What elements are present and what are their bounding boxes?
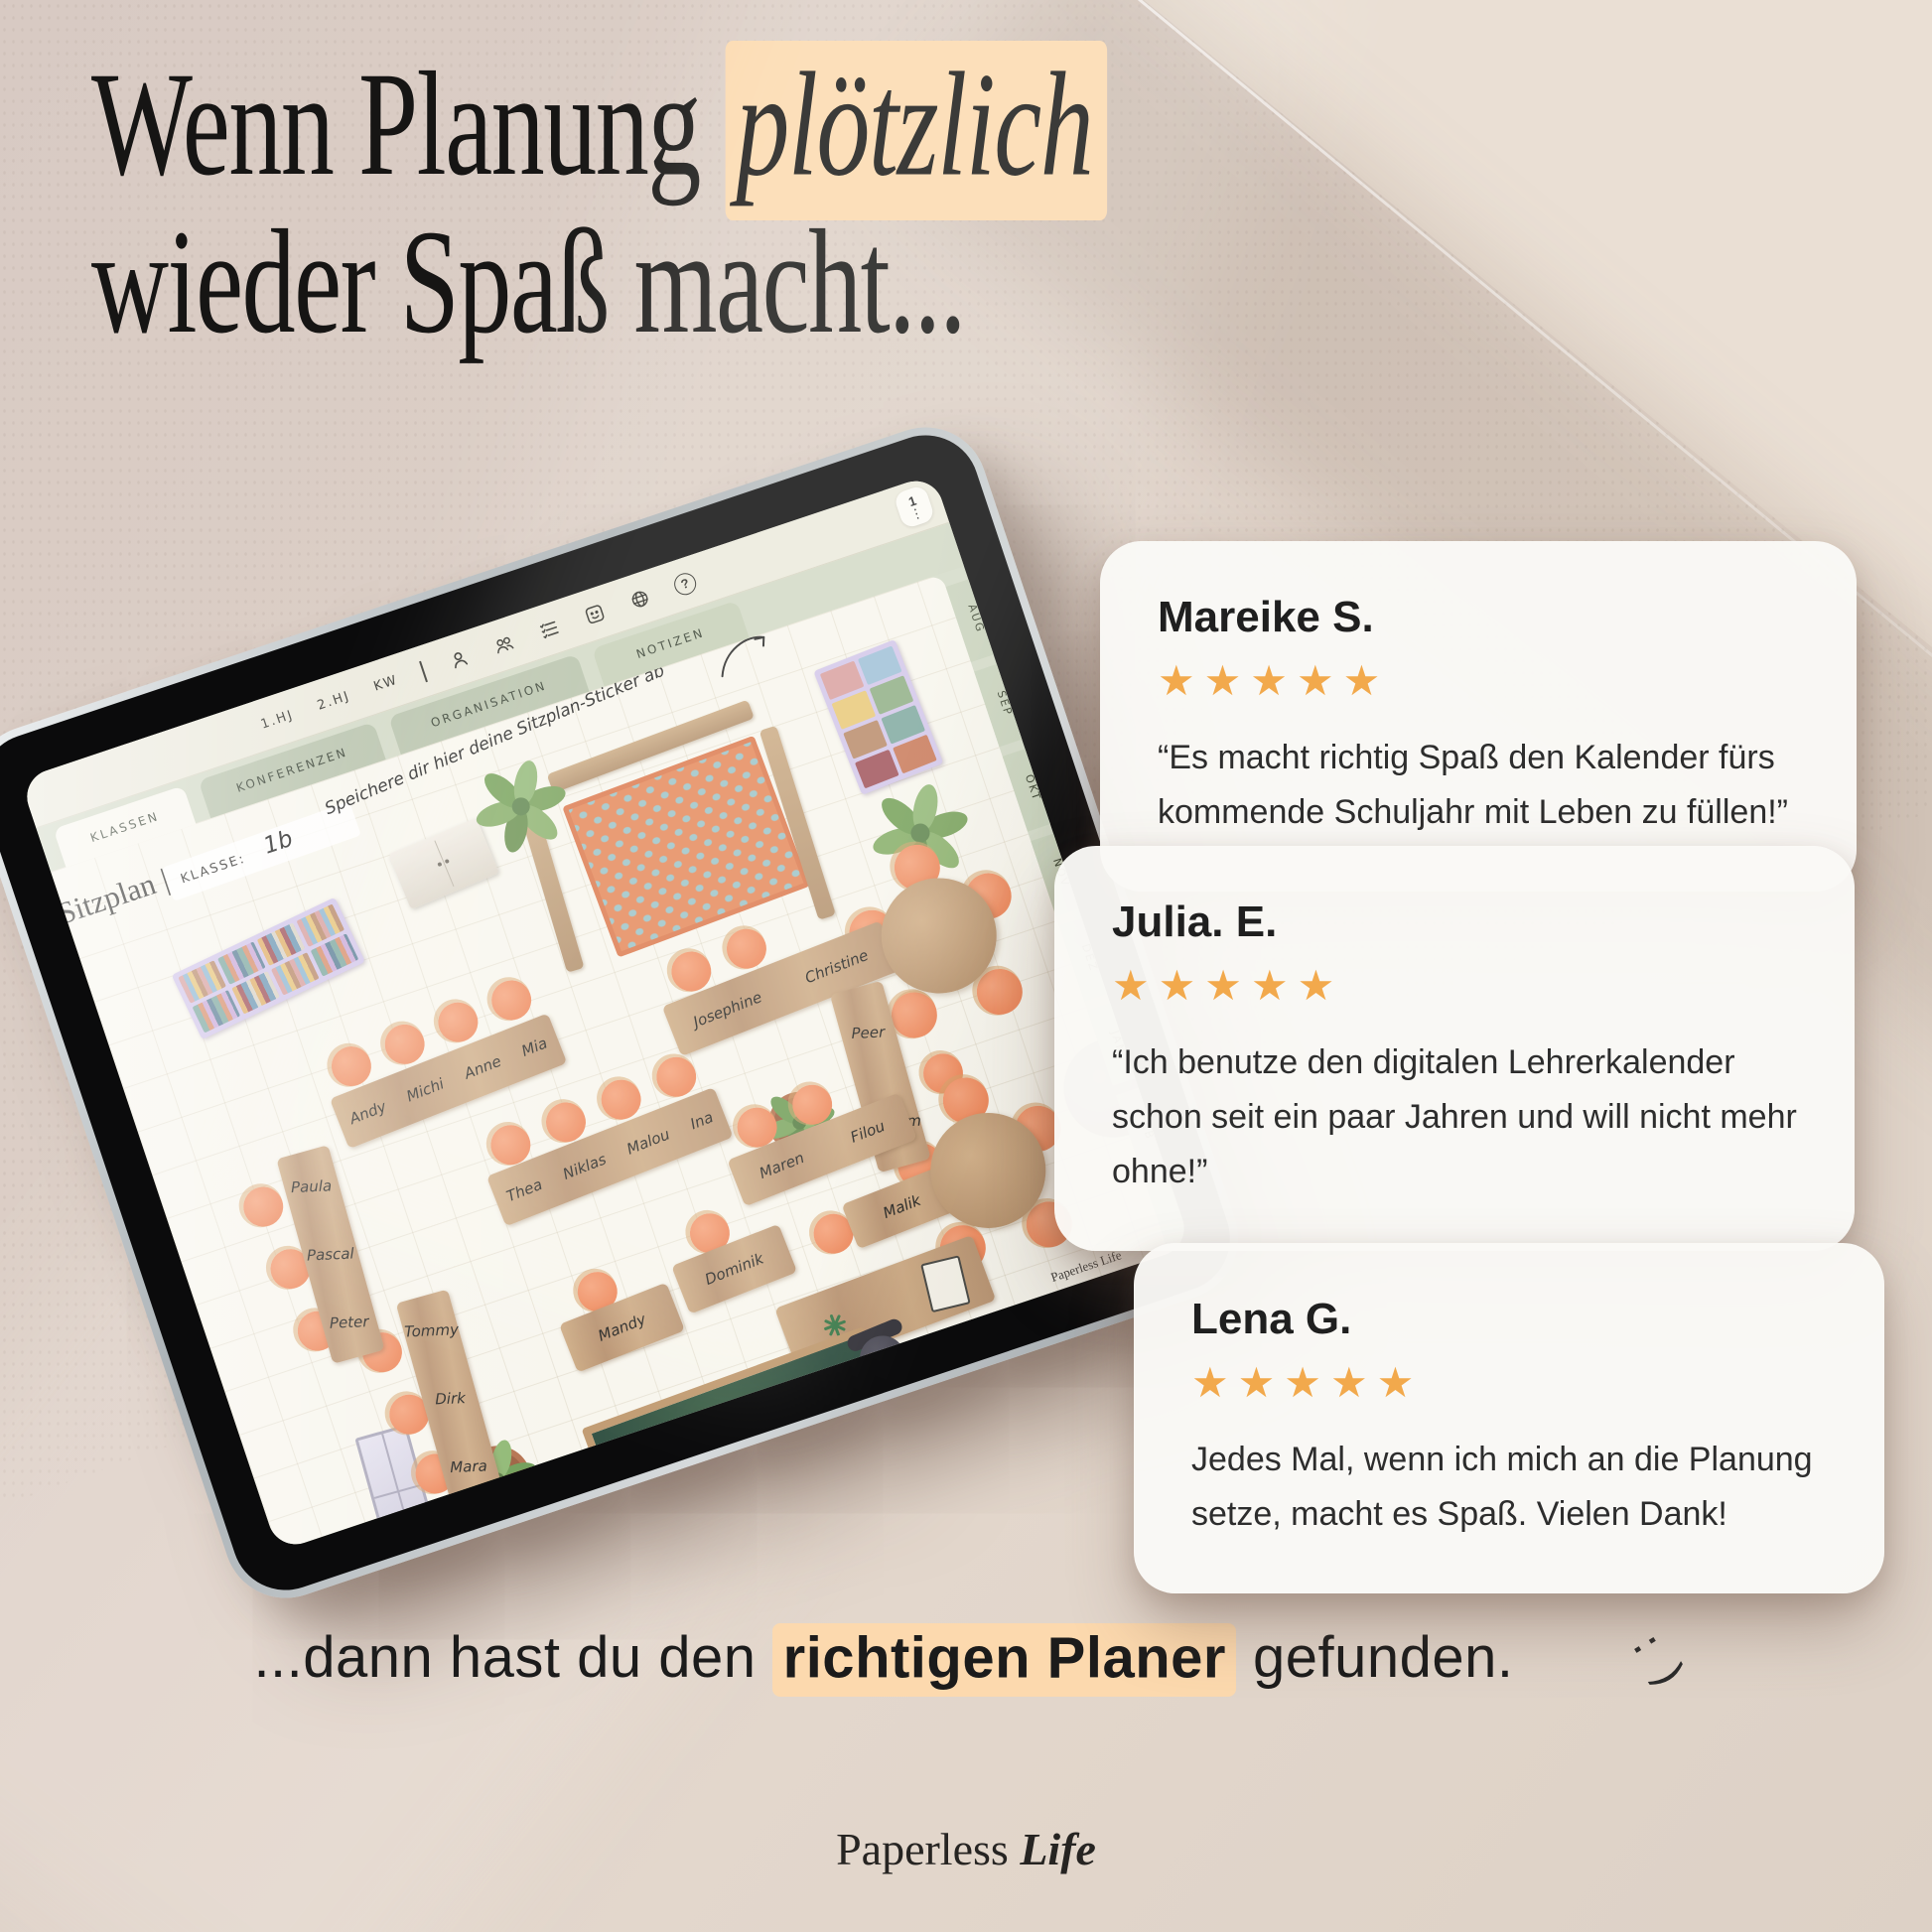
clipboard-sticker [920, 1255, 971, 1312]
student-name: Mandy [596, 1311, 648, 1345]
student-name: Peter [330, 1312, 369, 1332]
student-name: Thea [504, 1175, 545, 1205]
brand-footer: Paperless Life [0, 1823, 1932, 1875]
promo-scene: Wenn Planung plötzlich wieder Spaß macht… [0, 0, 1932, 1932]
toolbar-tab-kw[interactable]: KW [372, 672, 400, 694]
page-title: Sitzplan | [54, 862, 174, 932]
person-icon[interactable] [445, 645, 473, 673]
student-name: Peer [851, 1023, 885, 1041]
student-name: Niklas [560, 1151, 609, 1183]
student-name: Dominik [703, 1249, 766, 1288]
student-name: Pascal [307, 1244, 354, 1264]
review-card: Julia. E. ★★★★★ “Ich benutze den digital… [1054, 846, 1855, 1251]
student-name: Paula [291, 1176, 333, 1196]
review-text: Jedes Mal, wenn ich mich an die Planung … [1191, 1433, 1827, 1542]
student-name: Malik [881, 1191, 923, 1222]
shelf-sticker[interactable] [813, 639, 943, 795]
review-card: Lena G. ★★★★★ Jedes Mal, wenn ich mich a… [1134, 1243, 1884, 1593]
chair-sticker[interactable] [486, 975, 537, 1026]
brand-name-italic: Life [1020, 1824, 1096, 1874]
reviewer-name: Mareike S. [1158, 593, 1799, 642]
closing-highlight: richtigen Planer [772, 1623, 1236, 1697]
student-name: Maren [757, 1149, 806, 1182]
reviewer-name: Julia. E. [1112, 897, 1797, 947]
headline-text: Wenn Planung [91, 42, 726, 207]
headline: Wenn Planung plötzlich wieder Spaß macht… [91, 46, 1107, 361]
brand-name: Paperless [836, 1824, 1020, 1874]
student-name: Anne [462, 1052, 503, 1083]
student-name: Andy [346, 1097, 388, 1128]
star-rating: ★★★★★ [1191, 1358, 1827, 1407]
headline-line2: wieder Spaß macht... [91, 204, 1107, 361]
star-rating: ★★★★★ [1158, 656, 1799, 705]
review-card: Mareike S. ★★★★★ “Es macht richtig Spaß … [1100, 541, 1857, 892]
student-name: Filou [848, 1117, 888, 1147]
chair-sticker[interactable] [433, 997, 483, 1047]
star-rating: ★★★★★ [1112, 961, 1797, 1010]
help-icon[interactable]: ? [671, 570, 699, 598]
checklist-icon[interactable] [535, 616, 563, 643]
toolbar-tab-1hj[interactable]: 1.HJ [259, 708, 296, 733]
student-name: Mara [450, 1457, 487, 1477]
student-name: Josephine [691, 988, 764, 1031]
bookshelf-sticker[interactable] [172, 897, 365, 1039]
closing-line: ...dann hast du den richtigen Planer gef… [0, 1624, 1767, 1691]
student-name: Tommy [404, 1320, 459, 1340]
toolbar-separator [419, 660, 428, 681]
more-menu-icon[interactable]: ⋮ [909, 508, 925, 522]
student-name: Dirk [435, 1389, 466, 1408]
chair-sticker[interactable] [238, 1181, 289, 1232]
closing-text-end: gefunden. [1236, 1625, 1513, 1690]
globe-grid-icon[interactable] [626, 585, 654, 613]
closing-text: ...dann hast du den [253, 1625, 772, 1690]
review-text: “Es macht richtig Spaß den Kalender fürs… [1158, 731, 1799, 840]
toolbar-tab-2hj[interactable]: 2.HJ [316, 689, 352, 714]
canvas-watermark: Paperless Life [1048, 1247, 1123, 1286]
student-name: Michi [404, 1074, 447, 1105]
page-indicator[interactable]: 1 ⋮ [893, 484, 935, 530]
people-icon[interactable] [490, 630, 518, 658]
teacher-chair-sticker[interactable] [849, 1324, 916, 1392]
student-name: Malou [624, 1125, 672, 1158]
review-text: “Ich benutze den digitalen Lehrerkalende… [1112, 1035, 1797, 1199]
reviewer-name: Lena G. [1191, 1295, 1827, 1344]
student-name: Ina [688, 1108, 716, 1133]
headline-highlight: plötzlich [726, 41, 1108, 220]
student-name: Christine [802, 946, 871, 987]
sticker-smiley-icon[interactable] [581, 600, 609, 627]
student-name: Mia [519, 1034, 550, 1059]
